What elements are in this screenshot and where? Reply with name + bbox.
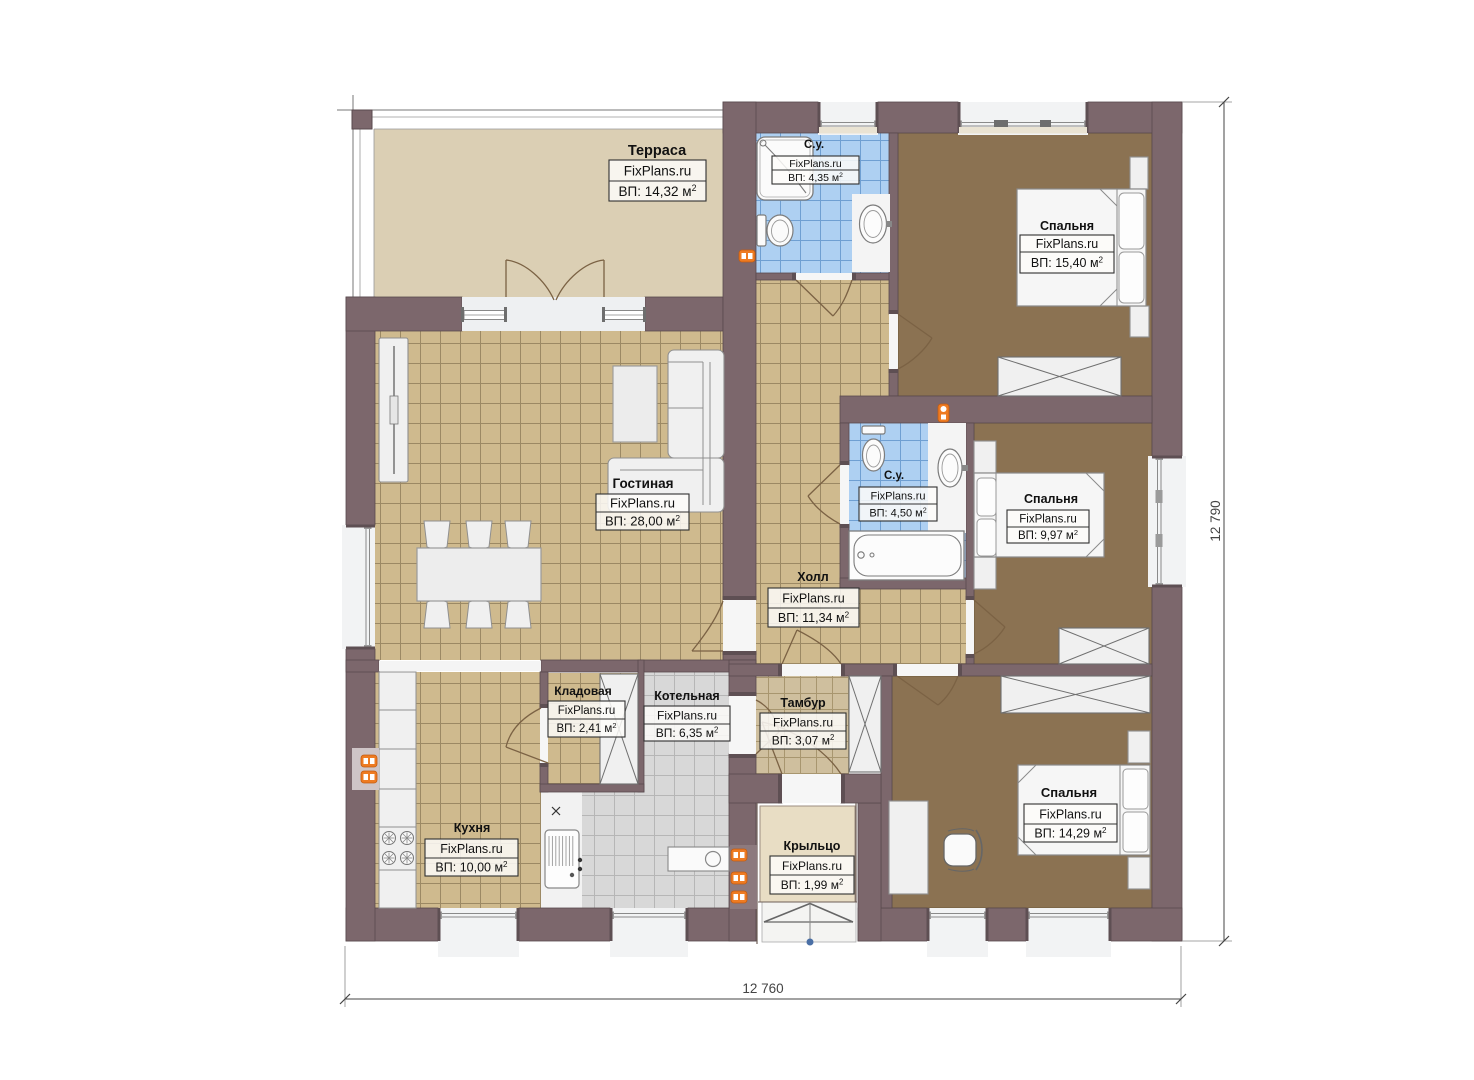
svg-text:ВП: 14,29 м2: ВП: 14,29 м2 (1034, 826, 1107, 840)
svg-text:ВП: 28,00 м2: ВП: 28,00 м2 (605, 513, 680, 529)
svg-text:Спальня: Спальня (1024, 492, 1078, 506)
svg-text:Спальня: Спальня (1040, 219, 1094, 233)
svg-text:Тамбур: Тамбур (780, 696, 826, 710)
svg-text:Кухня: Кухня (454, 821, 491, 835)
svg-text:FixPlans.ru: FixPlans.ru (1019, 514, 1077, 526)
svg-text:Терраса: Терраса (628, 143, 687, 159)
svg-text:Холл: Холл (797, 570, 828, 584)
svg-text:FixPlans.ru: FixPlans.ru (1036, 237, 1099, 251)
svg-text:Кладовая: Кладовая (554, 684, 611, 698)
svg-text:ВП: 6,35 м2: ВП: 6,35 м2 (656, 726, 719, 740)
svg-text:С.у.: С.у. (804, 139, 824, 151)
svg-text:FixPlans.ru: FixPlans.ru (782, 859, 842, 873)
svg-text:FixPlans.ru: FixPlans.ru (782, 592, 845, 606)
svg-text:ВП: 2,41 м2: ВП: 2,41 м2 (557, 721, 617, 735)
svg-text:FixPlans.ru: FixPlans.ru (558, 705, 616, 717)
svg-text:FixPlans.ru: FixPlans.ru (440, 842, 503, 856)
svg-text:ВП: 4,50 м2: ВП: 4,50 м2 (869, 507, 926, 520)
svg-text:FixPlans.ru: FixPlans.ru (624, 163, 692, 178)
svg-text:ВП: 9,97 м2: ВП: 9,97 м2 (1018, 528, 1078, 542)
svg-text:Спальня: Спальня (1041, 785, 1097, 800)
svg-text:FixPlans.ru: FixPlans.ru (773, 715, 833, 729)
svg-text:Котельная: Котельная (654, 689, 719, 703)
svg-text:ВП: 10,00 м2: ВП: 10,00 м2 (435, 860, 508, 874)
svg-text:12 760: 12 760 (742, 981, 783, 996)
svg-text:ВП: 3,07 м2: ВП: 3,07 м2 (772, 733, 835, 747)
svg-text:ВП: 1,99 м2: ВП: 1,99 м2 (781, 878, 844, 892)
svg-text:FixPlans.ru: FixPlans.ru (870, 490, 925, 502)
svg-text:ВП: 15,40 м2: ВП: 15,40 м2 (1031, 256, 1104, 270)
svg-text:12 790: 12 790 (1208, 500, 1223, 541)
svg-text:ВП: 11,34 м2: ВП: 11,34 м2 (778, 611, 850, 625)
svg-text:FixPlans.ru: FixPlans.ru (1039, 808, 1102, 822)
svg-text:FixPlans.ru: FixPlans.ru (789, 158, 842, 170)
svg-text:FixPlans.ru: FixPlans.ru (610, 496, 675, 511)
svg-text:ВП: 4,35 м2: ВП: 4,35 м2 (788, 172, 843, 184)
svg-text:ВП: 14,32 м2: ВП: 14,32 м2 (619, 183, 697, 199)
svg-text:Крыльцо: Крыльцо (784, 839, 841, 853)
svg-text:С.у.: С.у. (884, 470, 904, 482)
svg-text:FixPlans.ru: FixPlans.ru (657, 708, 717, 722)
svg-text:Гостиная: Гостиная (612, 476, 673, 491)
